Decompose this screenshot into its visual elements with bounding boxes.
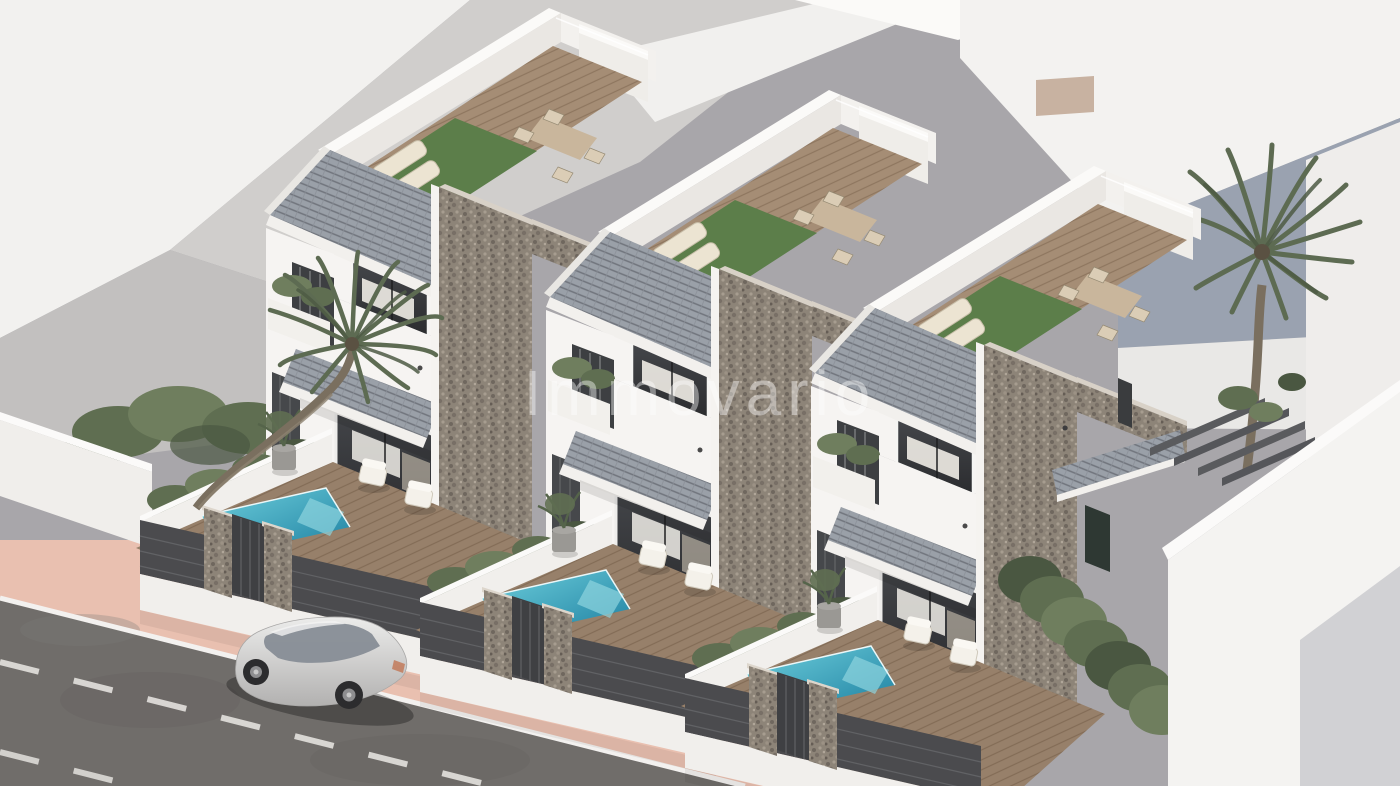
side-door [1085, 505, 1110, 572]
wall-lamp [1063, 426, 1068, 431]
watermark-text: Immovario [524, 357, 877, 429]
render-viewport: Immovario [0, 0, 1400, 786]
architectural-render: Immovario [0, 0, 1400, 786]
slit-window [1118, 378, 1132, 428]
